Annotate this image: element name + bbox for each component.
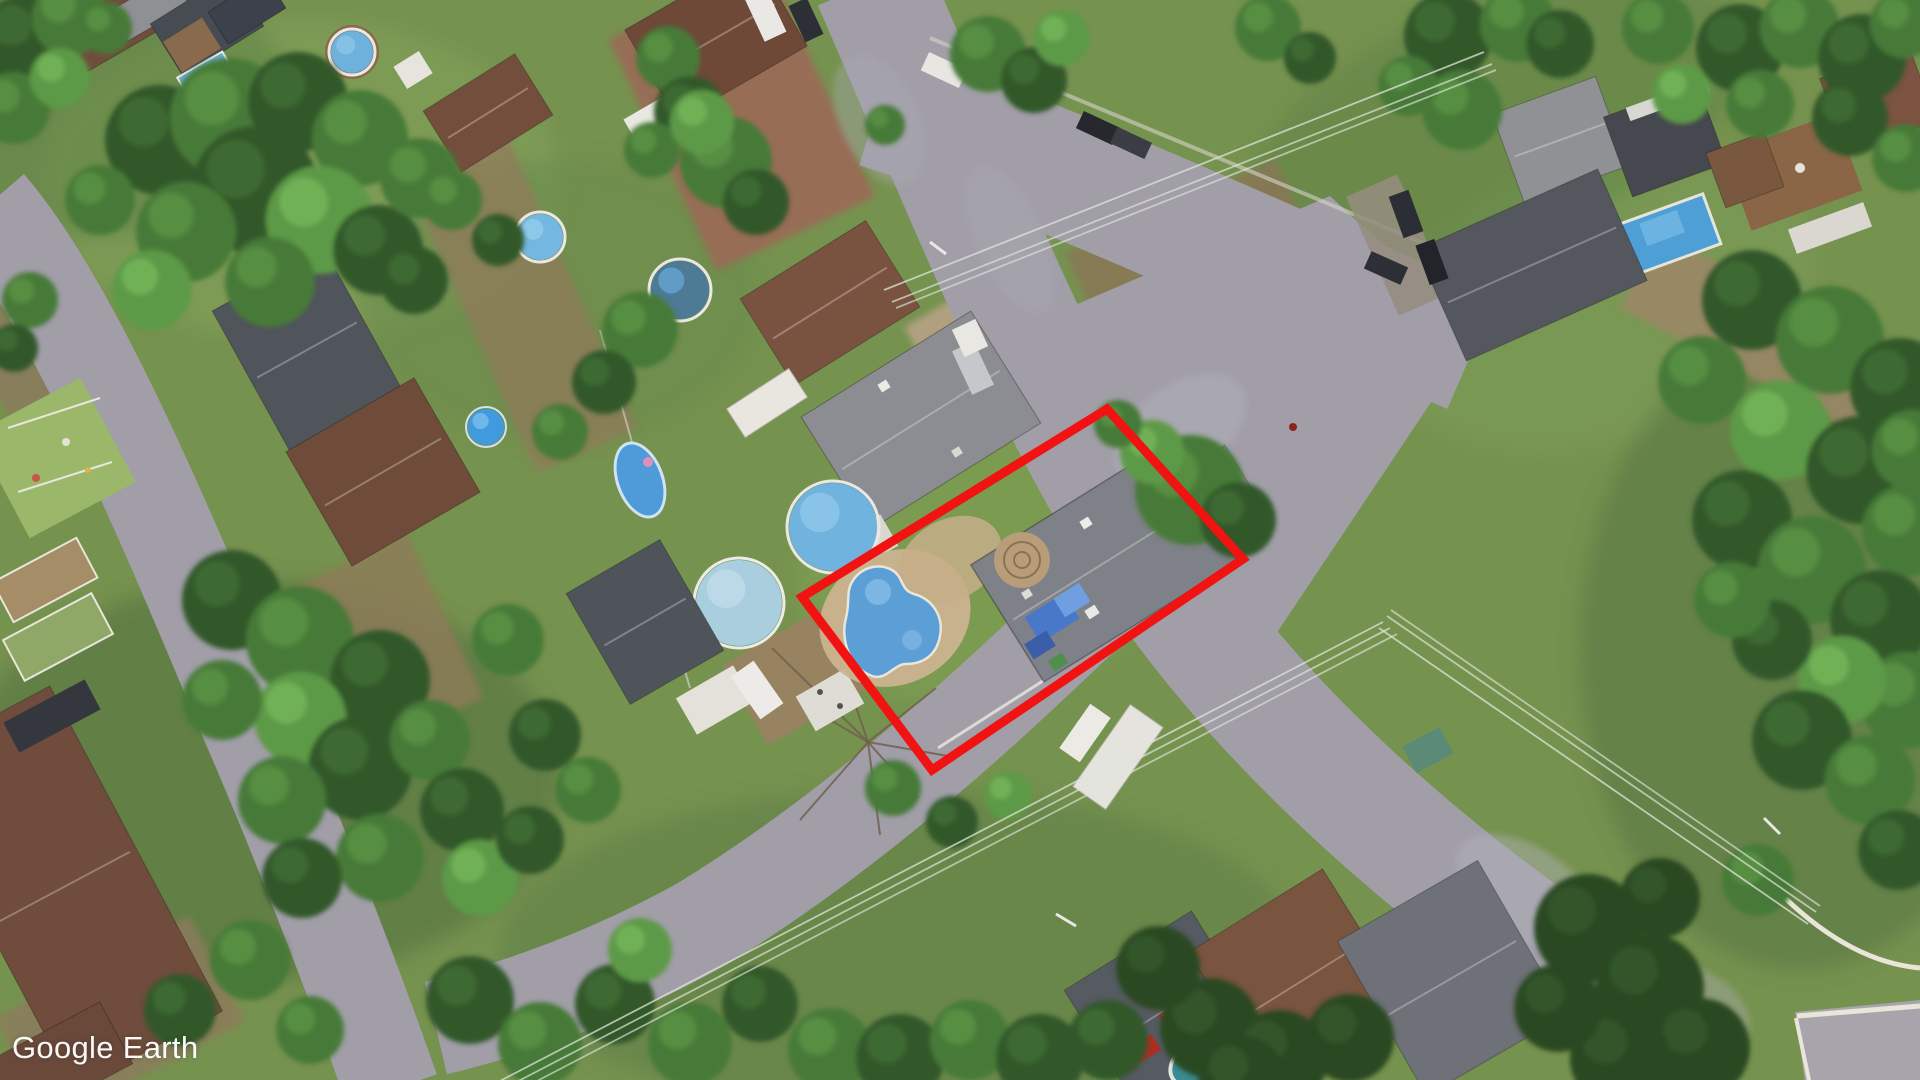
- tree-highlight: [659, 1011, 697, 1049]
- tree-highlight: [153, 982, 185, 1014]
- tree-highlight: [431, 777, 469, 815]
- shed-vent: [817, 689, 823, 695]
- tree-highlight: [9, 278, 34, 303]
- tree-highlight: [1525, 974, 1565, 1014]
- tree-highlight: [1829, 24, 1869, 64]
- tree-highlight: [452, 848, 486, 882]
- tree-highlight: [272, 847, 308, 883]
- tree-highlight: [437, 966, 477, 1006]
- aerial-scene: [0, 0, 1920, 1080]
- tree-highlight: [505, 813, 536, 844]
- tree-highlight: [1630, 867, 1666, 903]
- tree-highlight: [1317, 1004, 1357, 1044]
- tree-highlight: [1715, 261, 1760, 306]
- tree-highlight: [1743, 391, 1788, 436]
- tree-highlight: [1007, 1024, 1047, 1064]
- tree-highlight: [731, 176, 761, 206]
- tree-highlight: [119, 97, 169, 147]
- pool-highlight: [865, 579, 891, 605]
- kiddie-pool-water-highlight: [473, 413, 489, 429]
- tree-highlight: [236, 247, 277, 288]
- tree-highlight: [192, 669, 228, 705]
- round-pool-water-highlight: [707, 569, 746, 608]
- tree-highlight: [1663, 1009, 1708, 1054]
- tree-highlight: [1790, 298, 1839, 347]
- tree-highlight: [933, 802, 956, 825]
- tree-highlight: [1041, 16, 1066, 41]
- dirt-ring-feature: [994, 532, 1050, 588]
- round-pool-water-highlight: [336, 36, 355, 55]
- tree-highlight: [1882, 419, 1918, 455]
- tree-highlight: [1863, 349, 1908, 394]
- tree-highlight: [149, 193, 194, 238]
- tree-highlight: [612, 300, 646, 334]
- tree-highlight: [1820, 428, 1869, 477]
- tree-highlight: [1707, 14, 1747, 54]
- tree-highlight: [1631, 0, 1663, 32]
- tree-highlight: [1210, 490, 1244, 524]
- garden-feature: [62, 438, 70, 446]
- tree-highlight: [343, 641, 388, 686]
- round-pool-water-highlight: [800, 493, 840, 533]
- tree-highlight: [518, 707, 550, 739]
- tree-highlight: [430, 177, 457, 204]
- tree-highlight: [285, 1003, 316, 1034]
- pool-highlight: [902, 630, 922, 650]
- tree-highlight: [990, 777, 1012, 799]
- deck-furniture: [1795, 163, 1805, 173]
- shed-vent: [837, 703, 843, 709]
- tree-highlight: [1535, 17, 1566, 48]
- tree-highlight: [347, 824, 387, 864]
- tree-highlight: [260, 598, 309, 647]
- tree-highlight: [1765, 701, 1810, 746]
- round-pool-water-highlight: [523, 219, 544, 240]
- tree-highlight: [1836, 745, 1877, 786]
- tree-highlight: [872, 766, 897, 791]
- tree-highlight: [280, 178, 329, 227]
- tree-highlight: [960, 24, 994, 58]
- tree-highlight: [261, 63, 306, 108]
- tree-highlight: [266, 682, 307, 723]
- tree-highlight: [867, 1024, 907, 1064]
- tree-highlight: [644, 33, 673, 62]
- tree-highlight: [1705, 481, 1750, 526]
- motorcycle: [1289, 423, 1297, 431]
- tree-highlight: [74, 173, 106, 205]
- tree-highlight: [1009, 54, 1039, 84]
- tree-highlight: [585, 973, 621, 1009]
- tree-highlight: [1291, 38, 1314, 61]
- tree-highlight: [1704, 570, 1738, 604]
- tree-highlight: [1610, 946, 1659, 995]
- tree-highlight: [580, 357, 609, 386]
- tree-highlight: [1843, 581, 1888, 626]
- tree-highlight: [616, 925, 645, 954]
- tree-highlight: [195, 561, 240, 606]
- tree-highlight: [220, 929, 256, 965]
- covered-pool-water-highlight: [658, 267, 684, 293]
- watermark-brand-text: Google: [12, 1030, 114, 1065]
- tree-highlight: [1660, 71, 1687, 98]
- tree-highlight: [249, 766, 289, 806]
- tree-highlight: [1127, 935, 1165, 973]
- tree-highlight: [87, 8, 110, 31]
- google-earth-watermark: GoogleEarth: [12, 1030, 198, 1066]
- tree-highlight: [390, 147, 426, 183]
- tree-highlight: [631, 128, 656, 153]
- tree-highlight: [344, 215, 385, 256]
- tree-highlight: [1881, 131, 1912, 162]
- tree-highlight: [321, 727, 368, 774]
- garden-feature: [32, 474, 40, 482]
- tree-highlight: [1874, 494, 1915, 535]
- tree-highlight: [207, 140, 265, 198]
- tree-highlight: [1822, 88, 1856, 122]
- tree-highlight: [1669, 346, 1709, 386]
- tree-highlight: [481, 612, 513, 644]
- tree-highlight: [1243, 2, 1273, 32]
- tree-highlight: [1735, 77, 1766, 108]
- tree-highlight: [479, 220, 502, 243]
- tree-highlight: [400, 709, 436, 745]
- tree-highlight: [38, 55, 65, 82]
- tree-highlight: [799, 1017, 837, 1055]
- tree-highlight: [1809, 646, 1849, 686]
- tree-highlight: [1415, 2, 1455, 42]
- tree-highlight: [539, 410, 564, 435]
- tree-highlight: [1078, 1009, 1114, 1045]
- tree-highlight: [1868, 819, 1904, 855]
- tree-highlight: [122, 259, 158, 295]
- tree-highlight: [185, 71, 239, 125]
- tree-highlight: [1548, 886, 1597, 935]
- tree-highlight: [870, 109, 888, 127]
- watermark-product-text: Earth: [123, 1030, 199, 1065]
- tree-highlight: [509, 1011, 547, 1049]
- tree-highlight: [1772, 528, 1821, 577]
- tree-highlight: [732, 974, 766, 1008]
- tree-highlight: [389, 253, 420, 284]
- tree-highlight: [324, 101, 367, 144]
- tree-highlight: [940, 1009, 976, 1045]
- tree-highlight: [563, 764, 593, 794]
- pool-float: [643, 457, 653, 467]
- tree-highlight: [678, 97, 707, 126]
- garden-feature: [85, 467, 91, 473]
